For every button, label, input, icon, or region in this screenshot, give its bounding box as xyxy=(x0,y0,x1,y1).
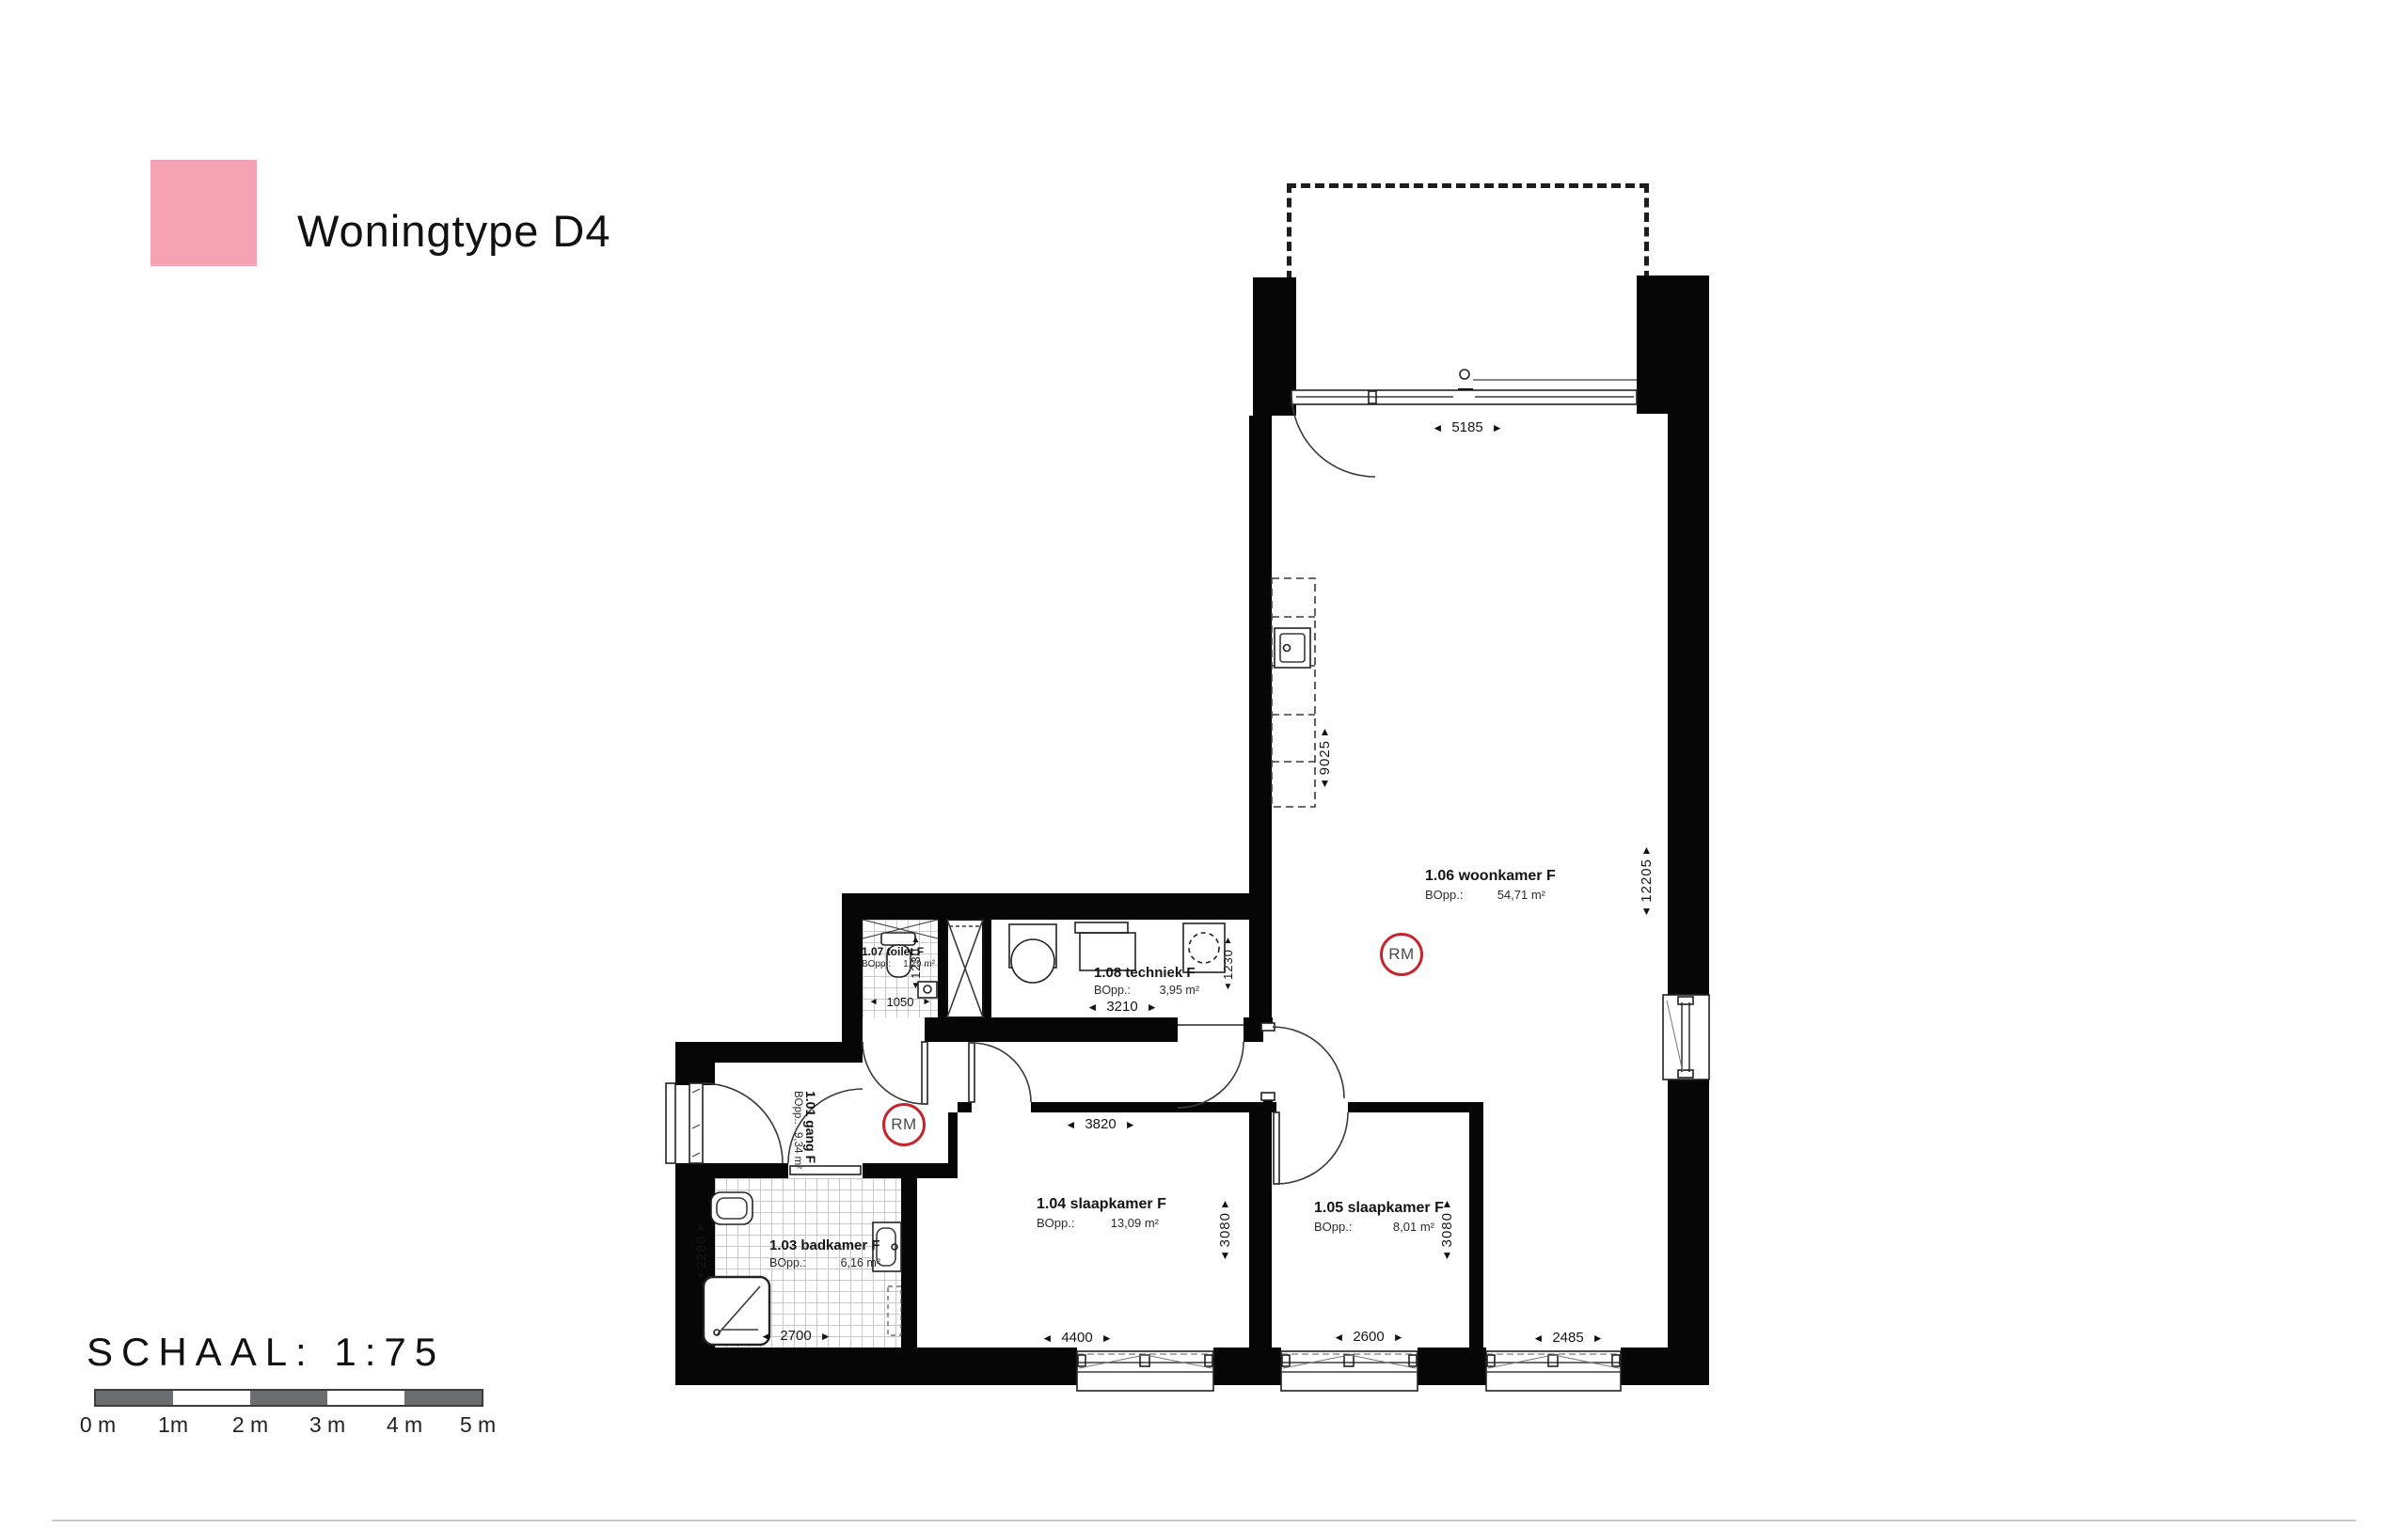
room-label-badkamer: 1.03 badkamer F BOpp.:6,16 m² xyxy=(769,1237,880,1269)
dim-toilet-depth: ▲1230▼ xyxy=(909,936,923,991)
dim-living-top-width: ◄5185► xyxy=(1406,419,1529,435)
room-label-slaapkamer-105: 1.05 slaapkamer F BOpp.:8,01 m² xyxy=(1314,1200,1434,1234)
dim-techniek-depth: ▲1230▼ xyxy=(1221,937,1235,992)
scale-label: SCHAAL: 1:75 xyxy=(87,1330,445,1375)
dim-kitchen-length: ▲9025▼ xyxy=(1317,726,1333,789)
dim-toilet-width: ◄1050► xyxy=(863,995,937,1009)
scale-bar xyxy=(94,1389,483,1407)
room-label-slaapkamer-104: 1.04 slaapkamer F BOpp.:13,09 m² xyxy=(1037,1196,1159,1230)
dim-slaapkamer105-width: ◄2600► xyxy=(1324,1329,1413,1345)
rm-badge-gang: RM xyxy=(882,1103,926,1146)
floorplan-page: Woningtype D4 xyxy=(0,0,2408,1529)
room-label-woonkamer: 1.06 woonkamer F BOpp.:54,71 m² xyxy=(1425,868,1545,902)
dim-slaapkamer104-height: ▲3080▼ xyxy=(1217,1198,1233,1261)
dim-techniek-width: ◄3210► xyxy=(1079,999,1165,1015)
dim-slaapkamer104-width: ◄4400► xyxy=(1033,1330,1121,1346)
room-label-techniek: 1.08 techniek F BOpp.:3,95 m² xyxy=(1094,965,1199,997)
plan-linework xyxy=(0,0,2408,1529)
dim-living-right-height: ▲12205▼ xyxy=(1639,844,1655,917)
room-label-gang: 1.01 gang F BOpp.:9,34 m² xyxy=(792,1091,818,1194)
scale-tick-0: 0 m xyxy=(80,1412,116,1438)
dim-hall-width: ◄3820► xyxy=(1057,1116,1144,1132)
scale-tick-2: 2 m xyxy=(232,1412,268,1438)
dim-badkamer-height: ▲2280▼ xyxy=(693,1222,708,1282)
footer-divider xyxy=(52,1520,2356,1521)
rm-badge-woonkamer: RM xyxy=(1380,933,1423,976)
dim-badkamer-width: ◄2700► xyxy=(752,1328,839,1344)
scale-tick-1: 1m xyxy=(158,1412,188,1438)
room-label-toilet: 1.07 toilet F BOpp.:1,29 m² xyxy=(862,945,935,969)
dim-living-window-width: ◄2485► xyxy=(1524,1330,1612,1346)
scale-tick-3: 3 m xyxy=(309,1412,345,1438)
dim-slaapkamer105-height: ▲3080▼ xyxy=(1439,1198,1455,1261)
scale-tick-5: 5 m xyxy=(460,1412,496,1438)
scale-tick-4: 4 m xyxy=(387,1412,422,1438)
